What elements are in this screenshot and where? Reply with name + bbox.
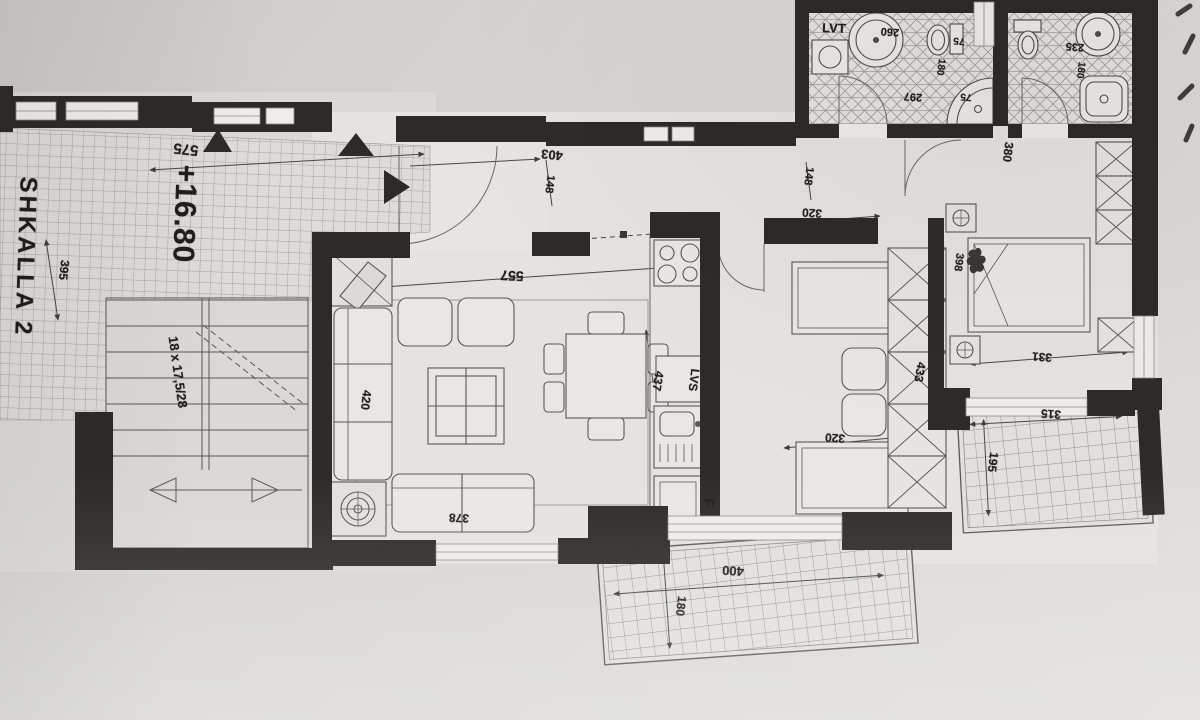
bathrooms bbox=[809, 12, 1132, 126]
double-bed-icon bbox=[968, 238, 1090, 332]
bathtub-round-icon bbox=[849, 13, 903, 67]
dishwasher-icon bbox=[656, 356, 702, 402]
bed-icon bbox=[792, 262, 902, 334]
nightstand-plant-icon bbox=[946, 204, 976, 232]
kitchen-fixtures bbox=[650, 236, 704, 532]
scanned-floor-plan-page: SHKALLA 2+16.8057539518 x 17,5/284031485… bbox=[0, 0, 1200, 720]
armchair-icon bbox=[458, 298, 514, 346]
paper-edge-text-marks bbox=[1178, 6, 1193, 140]
kitchen-sink-icon bbox=[654, 406, 702, 468]
speaker-plant-icon bbox=[330, 482, 386, 536]
armchair-icon bbox=[398, 298, 452, 346]
coffee-table-icon bbox=[428, 368, 504, 444]
nightstand-icon bbox=[842, 394, 886, 436]
floor-plan-drawing bbox=[0, 0, 1200, 720]
washing-machine-icon bbox=[812, 40, 848, 74]
nightstand-plant-icon bbox=[950, 336, 980, 364]
sofa-icon bbox=[334, 308, 392, 480]
shower-tray-icon bbox=[1080, 76, 1128, 122]
loveseat-icon bbox=[392, 474, 534, 532]
corner-tv-stand-icon bbox=[330, 252, 392, 310]
nightstand-icon bbox=[842, 348, 886, 390]
toilet-icon bbox=[927, 24, 963, 55]
sink-round-icon bbox=[1076, 12, 1120, 56]
stove-icon bbox=[654, 240, 702, 286]
